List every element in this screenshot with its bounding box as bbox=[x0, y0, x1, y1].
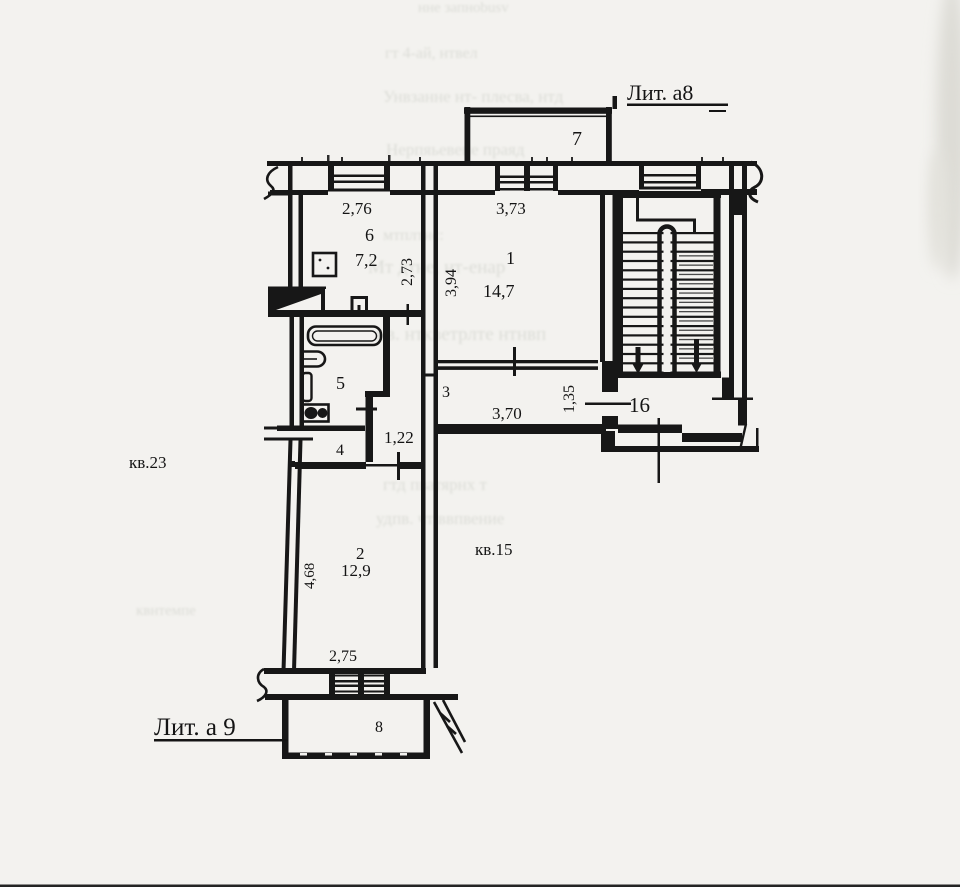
svg-text:3,73: 3,73 bbox=[496, 199, 526, 218]
svg-text:14,7: 14,7 bbox=[483, 281, 515, 301]
svg-text:1,35: 1,35 bbox=[561, 385, 578, 413]
svg-text:7: 7 bbox=[572, 128, 582, 150]
svg-text:удпв. чт ввпвение: удпв. чт ввпвение bbox=[376, 509, 504, 528]
svg-text:нв. нткветрлте нтнвп: нв. нткветрлте нтнвп bbox=[376, 324, 546, 345]
svg-text:1,22: 1,22 bbox=[384, 428, 414, 447]
svg-text:16: 16 bbox=[629, 393, 650, 417]
svg-text:12,9: 12,9 bbox=[341, 561, 371, 580]
svg-text:2,76: 2,76 bbox=[342, 199, 372, 218]
svg-text:2,75: 2,75 bbox=[329, 648, 357, 665]
svg-text:гт 4-ай, нтвел: гт 4-ай, нтвел bbox=[385, 45, 478, 62]
svg-text:кв.23: кв.23 bbox=[129, 453, 167, 472]
svg-text:2,73: 2,73 bbox=[399, 258, 416, 286]
svg-text:6: 6 bbox=[365, 225, 374, 245]
svg-text:3: 3 bbox=[442, 384, 450, 401]
svg-text:3,70: 3,70 bbox=[492, 404, 522, 423]
svg-text:Лит. а 9: Лит. а 9 bbox=[154, 714, 236, 741]
svg-text:1: 1 bbox=[506, 248, 515, 268]
svg-text:кв.15: кв.15 bbox=[475, 540, 513, 559]
svg-text:4: 4 bbox=[336, 442, 344, 459]
svg-text:нне запноbusv: нне запноbusv bbox=[418, 0, 509, 16]
svg-text:квнтемпе: квнтемпе bbox=[136, 603, 196, 619]
svg-text:3,94: 3,94 bbox=[443, 269, 460, 297]
svg-text:Унвзанне нт- плесва, нтд: Унвзанне нт- плесва, нтд bbox=[383, 87, 564, 106]
svg-text:4,68: 4,68 bbox=[302, 563, 318, 589]
svg-text:Лит. а8: Лит. а8 bbox=[627, 80, 693, 105]
svg-text:5: 5 bbox=[336, 373, 345, 393]
svg-text:Нерпяьевене праяд: Нерпяьевене праяд bbox=[386, 140, 525, 159]
svg-text:8: 8 bbox=[375, 719, 383, 736]
svg-text:7,2: 7,2 bbox=[355, 250, 378, 270]
